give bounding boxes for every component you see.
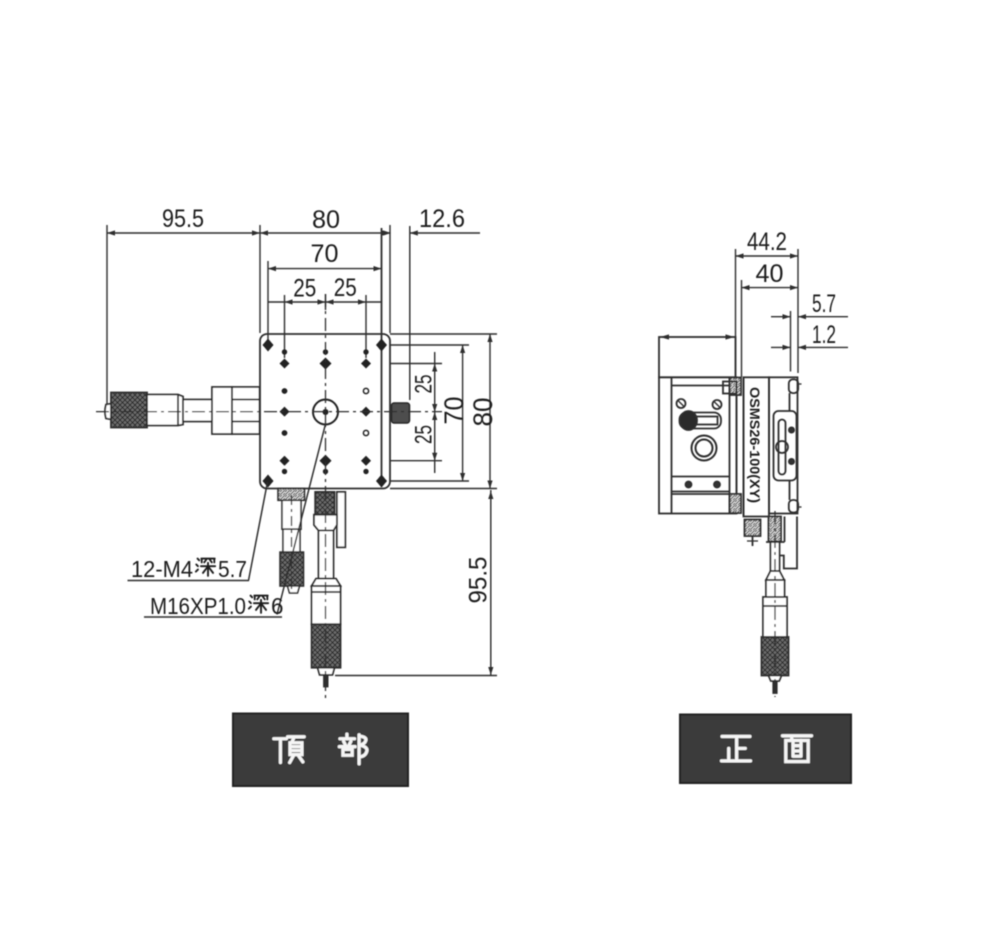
svg-text:12-M4: 12-M4 (131, 556, 193, 582)
svg-text:5.7: 5.7 (218, 556, 247, 582)
svg-text:80: 80 (468, 398, 498, 427)
svg-text:12.6: 12.6 (419, 205, 465, 233)
svg-text:6: 6 (271, 593, 284, 619)
svg-text:5.7: 5.7 (812, 290, 836, 318)
svg-text:25: 25 (293, 275, 316, 303)
svg-text:25: 25 (334, 274, 357, 302)
svg-text:95.5: 95.5 (162, 205, 204, 233)
svg-text:M16XP1.0: M16XP1.0 (150, 593, 246, 619)
svg-text:OSMS26-100(XY): OSMS26-100(XY) (747, 387, 762, 503)
svg-text:44.2: 44.2 (747, 228, 787, 256)
svg-text:25: 25 (411, 375, 438, 394)
svg-text:70: 70 (311, 240, 339, 268)
svg-text:25: 25 (411, 425, 438, 444)
svg-text:70: 70 (439, 397, 469, 425)
svg-text:80: 80 (312, 206, 340, 234)
svg-text:40: 40 (756, 260, 784, 288)
svg-text:1.2: 1.2 (812, 321, 836, 349)
svg-text:95.5: 95.5 (465, 557, 493, 604)
